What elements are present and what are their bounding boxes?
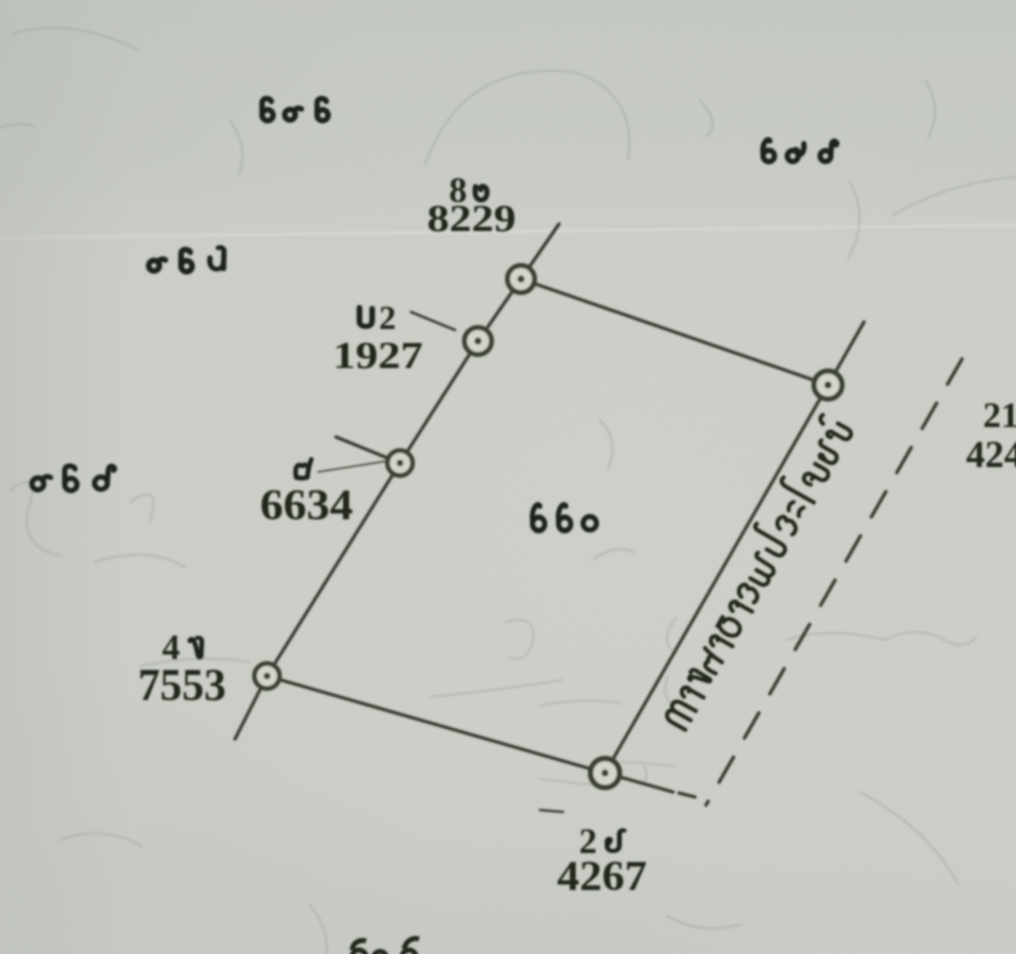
svg-text:7553: 7553	[138, 659, 226, 710]
svg-text:2: 2	[379, 300, 396, 337]
svg-text:8229: 8229	[427, 198, 516, 240]
svg-text:6634: 6634	[260, 482, 353, 529]
svg-text:21: 21	[983, 395, 1016, 435]
svg-text:4246: 4246	[966, 434, 1016, 476]
svg-text:1927: 1927	[333, 335, 423, 377]
svg-text:4267: 4267	[557, 854, 647, 900]
